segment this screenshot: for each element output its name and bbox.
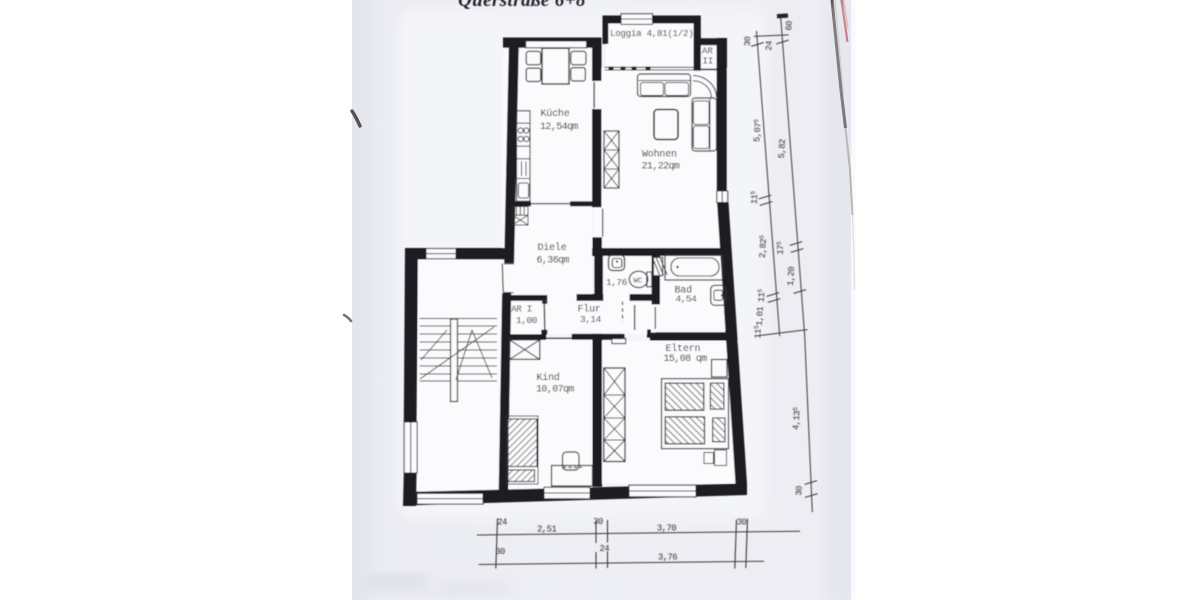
svg-text:1,00: 1,00 (516, 315, 538, 326)
svg-text:30: 30 (495, 547, 505, 557)
svg-text:6,36qm: 6,36qm (537, 256, 570, 267)
svg-text:Wohnen: Wohnen (642, 149, 677, 161)
svg-text:15,08 qm: 15,08 qm (664, 354, 708, 365)
svg-text:3,14: 3,14 (580, 314, 602, 325)
svg-text:3,70: 3,70 (657, 524, 676, 534)
svg-text:2,51: 2,51 (537, 525, 556, 535)
svg-text:AR: AR (702, 47, 713, 57)
svg-text:24: 24 (764, 41, 775, 51)
svg-text:30: 30 (743, 36, 754, 46)
svg-text:60: 60 (784, 21, 795, 31)
svg-text:5,82: 5,82 (777, 139, 788, 159)
svg-text:Küche: Küche (541, 108, 570, 120)
svg-text:II: II (703, 57, 714, 67)
svg-text:21,22qm: 21,22qm (642, 162, 680, 173)
svg-text:4,54: 4,54 (676, 294, 698, 305)
svg-text:WC: WC (633, 278, 643, 286)
svg-text:30: 30 (593, 517, 603, 527)
svg-text:24: 24 (497, 517, 507, 527)
svg-text:Kind: Kind (537, 372, 560, 384)
svg-text:12,54qm: 12,54qm (540, 122, 578, 133)
svg-text:24: 24 (600, 544, 610, 554)
svg-text:1,76: 1,76 (606, 277, 628, 288)
svg-text:AR I: AR I (511, 305, 532, 315)
svg-text:1,20: 1,20 (786, 266, 797, 286)
svg-text:3,76: 3,76 (658, 553, 677, 563)
svg-text:30: 30 (794, 486, 805, 496)
svg-text:Diele: Diele (538, 242, 567, 254)
svg-text:30: 30 (737, 517, 747, 527)
svg-text:10,07qm: 10,07qm (536, 385, 574, 396)
svg-text:1,01: 1,01 (755, 306, 766, 326)
svg-text:Querstraße 6+8: Querstraße 6+8 (458, 0, 586, 11)
svg-text:Loggia 4,81(1/2): Loggia 4,81(1/2) (610, 28, 693, 39)
